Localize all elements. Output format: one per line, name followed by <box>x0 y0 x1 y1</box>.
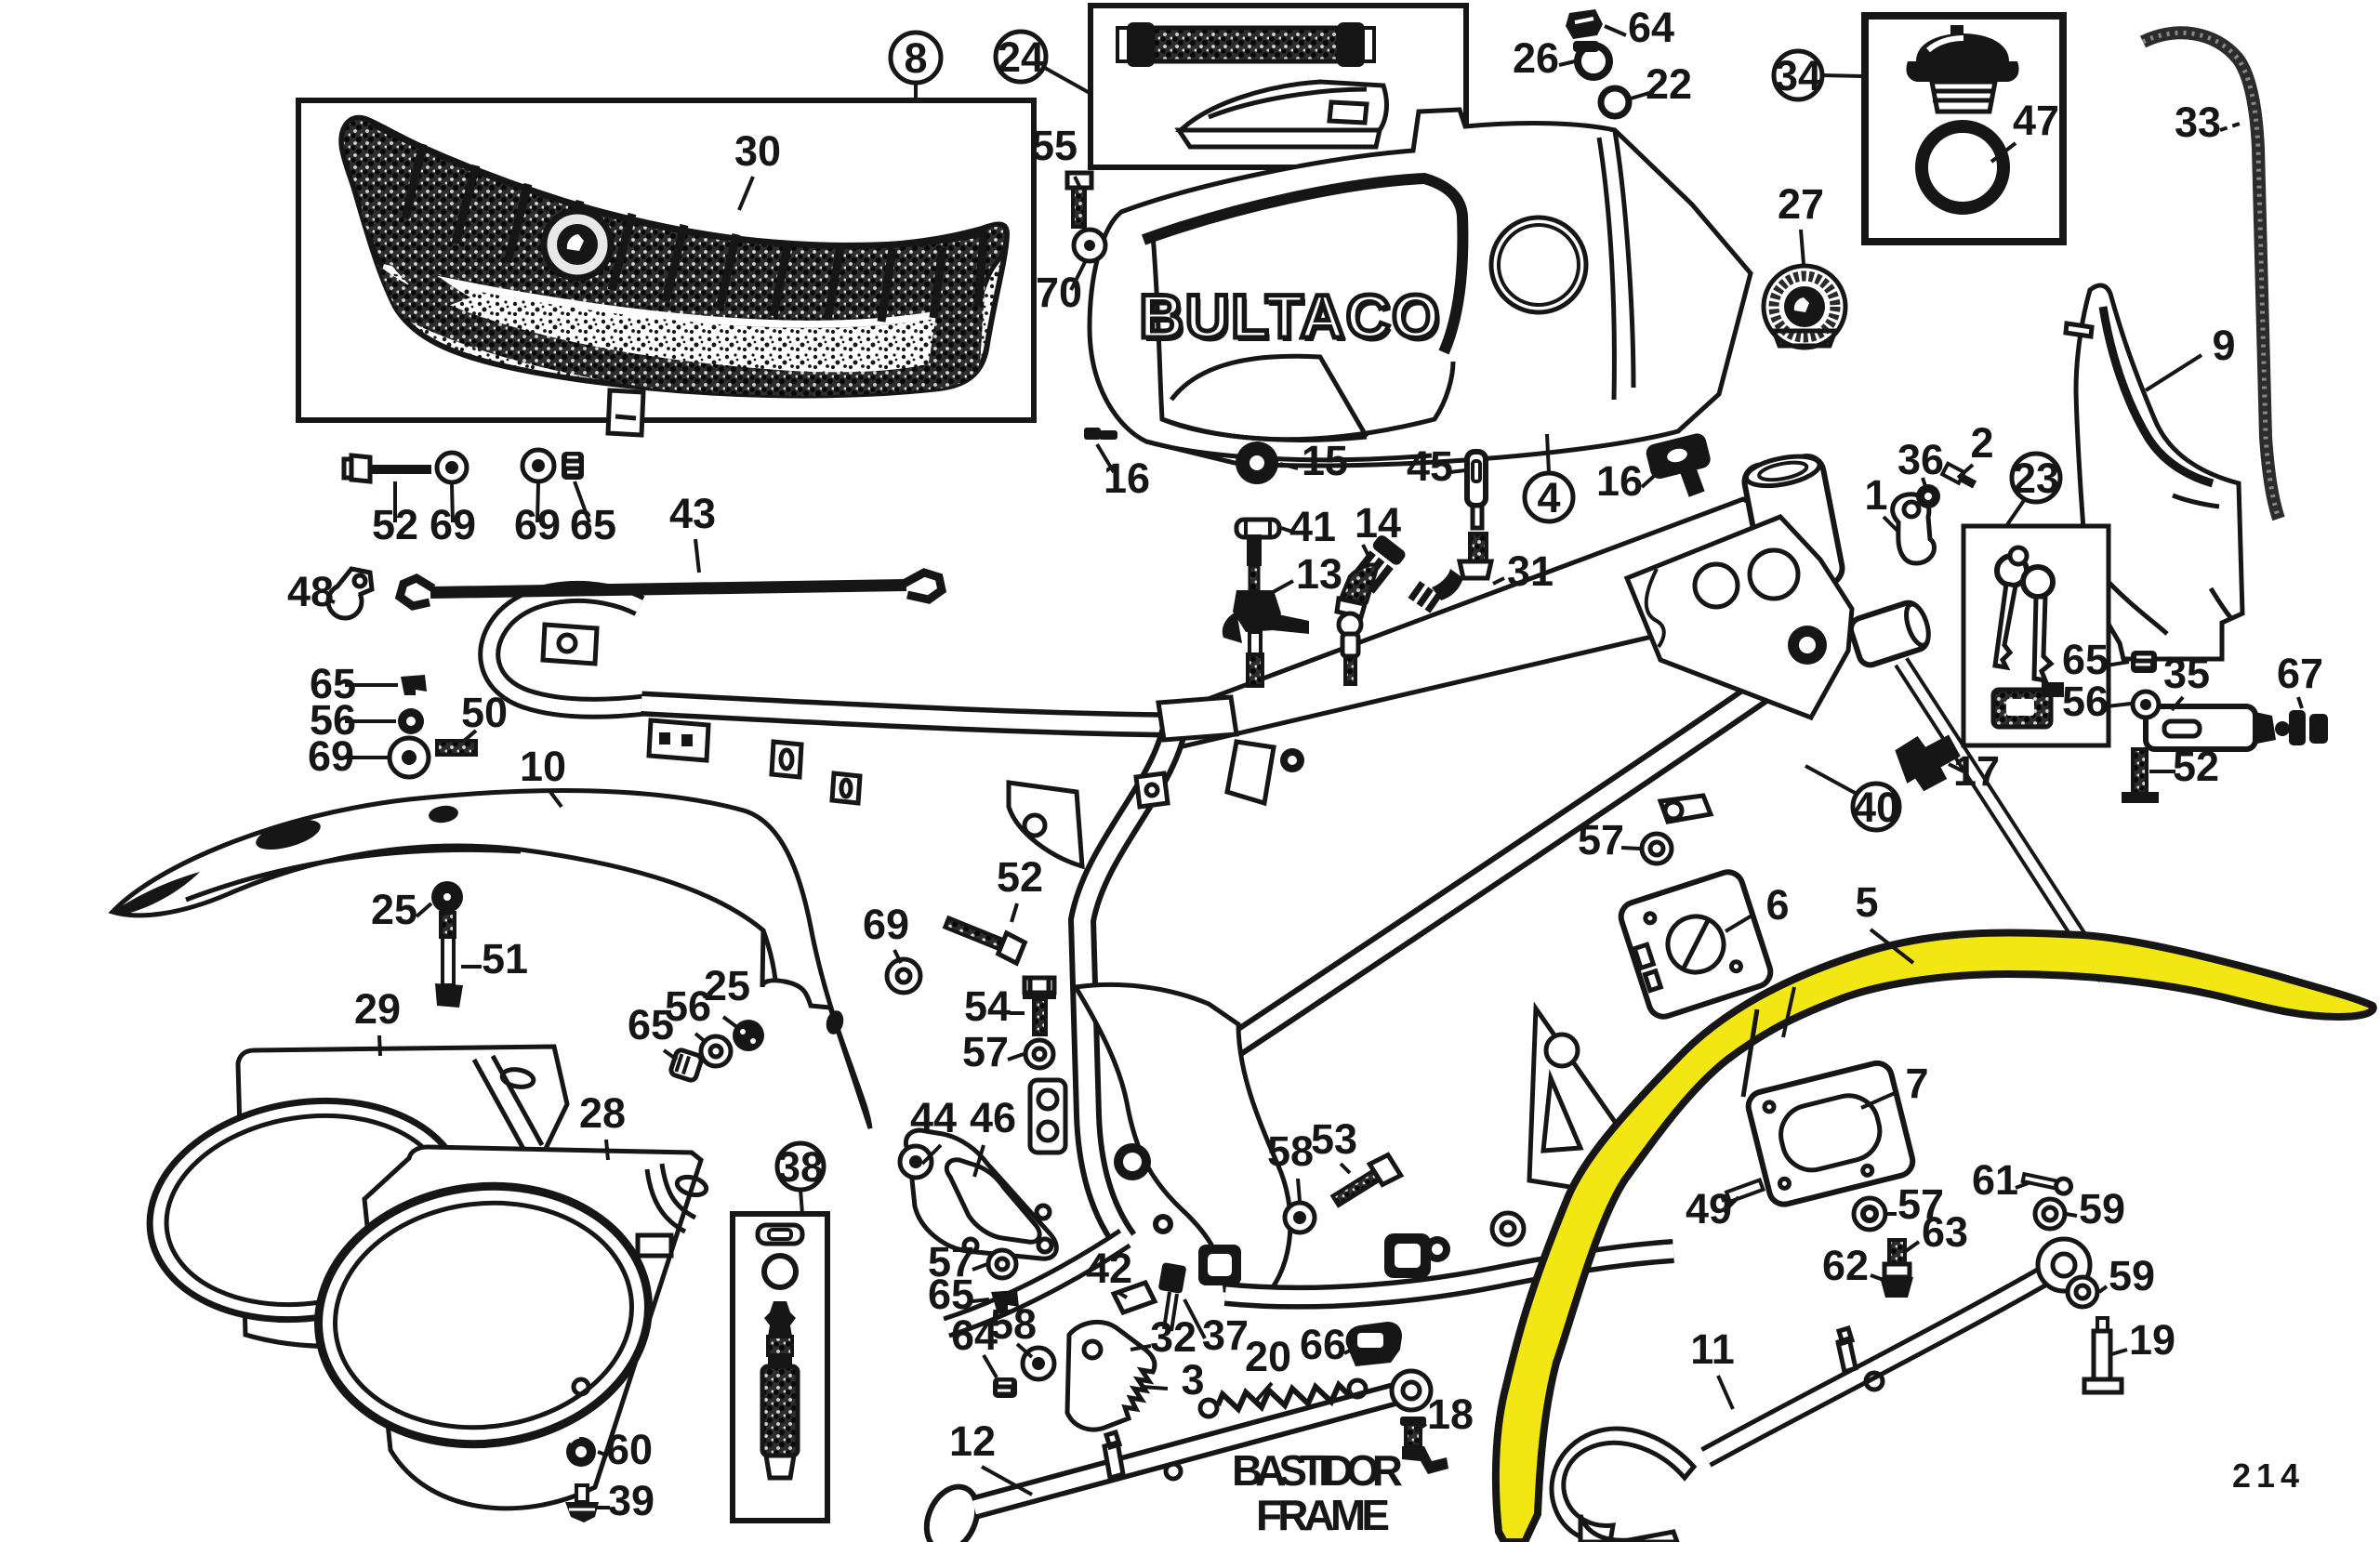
svg-text:13: 13 <box>1296 550 1342 598</box>
svg-text:65: 65 <box>2062 636 2109 683</box>
svg-text:56: 56 <box>2062 678 2109 725</box>
svg-text:FRAME: FRAME <box>1256 1491 1390 1539</box>
svg-text:31: 31 <box>1507 547 1554 595</box>
svg-text:40: 40 <box>1853 784 1899 831</box>
svg-text:28: 28 <box>579 1089 626 1137</box>
svg-text:BULTACO: BULTACO <box>1140 282 1442 350</box>
svg-text:64: 64 <box>1628 4 1674 51</box>
svg-text:54: 54 <box>964 982 1011 1030</box>
svg-text:39: 39 <box>608 1477 654 1524</box>
svg-text:53: 53 <box>1311 1115 1357 1163</box>
svg-text:15: 15 <box>1302 437 1348 484</box>
svg-text:22: 22 <box>1646 60 1692 108</box>
svg-text:11: 11 <box>1690 1325 1735 1373</box>
svg-text:52: 52 <box>372 501 418 548</box>
svg-text:8: 8 <box>904 34 927 82</box>
svg-text:64: 64 <box>951 1311 998 1359</box>
svg-text:41: 41 <box>1289 503 1336 550</box>
svg-text:38: 38 <box>777 1143 824 1191</box>
svg-text:51: 51 <box>482 935 528 982</box>
svg-text:3: 3 <box>1181 1356 1204 1404</box>
svg-text:26: 26 <box>1513 34 1559 82</box>
svg-text:7: 7 <box>1905 1060 1928 1107</box>
svg-text:69: 69 <box>308 732 354 780</box>
svg-text:35: 35 <box>2163 650 2210 697</box>
svg-text:25: 25 <box>704 962 750 1009</box>
svg-text:16: 16 <box>1596 457 1643 505</box>
svg-text:67: 67 <box>2277 650 2323 697</box>
svg-text:57: 57 <box>962 1028 1009 1075</box>
svg-text:63: 63 <box>1922 1208 1968 1256</box>
svg-text:5: 5 <box>1855 878 1878 926</box>
svg-text:19: 19 <box>2129 1316 2175 1364</box>
svg-text:52: 52 <box>2173 743 2219 790</box>
svg-text:17: 17 <box>1953 747 2000 795</box>
svg-text:12: 12 <box>949 1417 996 1465</box>
svg-text:65: 65 <box>570 501 616 548</box>
svg-text:34: 34 <box>1775 52 1821 99</box>
svg-text:59: 59 <box>2079 1185 2125 1232</box>
svg-text:48: 48 <box>287 568 334 615</box>
svg-text:69: 69 <box>863 901 909 948</box>
svg-text:20: 20 <box>1245 1333 1291 1380</box>
svg-text:55: 55 <box>1031 122 1078 169</box>
svg-text:37: 37 <box>1202 1311 1249 1359</box>
svg-text:2: 2 <box>1970 419 1993 467</box>
svg-text:27: 27 <box>1778 180 1824 228</box>
svg-text:9: 9 <box>2212 322 2235 369</box>
svg-text:18: 18 <box>1427 1390 1474 1438</box>
svg-text:57: 57 <box>1578 816 1624 863</box>
svg-text:29: 29 <box>354 985 401 1033</box>
svg-text:32: 32 <box>1150 1313 1197 1361</box>
svg-text:10: 10 <box>520 743 566 790</box>
svg-text:50: 50 <box>461 689 508 736</box>
svg-text:BASTIDOR: BASTIDOR <box>1232 1446 1403 1495</box>
svg-text:59: 59 <box>2109 1252 2155 1299</box>
svg-text:6: 6 <box>1765 881 1789 929</box>
svg-text:62: 62 <box>1822 1242 1869 1289</box>
svg-text:33: 33 <box>2175 99 2221 146</box>
svg-text:24: 24 <box>998 33 1044 81</box>
svg-text:52: 52 <box>997 853 1043 901</box>
svg-text:44: 44 <box>910 1094 957 1141</box>
svg-text:16: 16 <box>1104 455 1150 502</box>
svg-text:4: 4 <box>1537 474 1560 521</box>
svg-text:42: 42 <box>1086 1245 1132 1292</box>
svg-text:47: 47 <box>2013 97 2059 144</box>
svg-text:58: 58 <box>1267 1127 1314 1175</box>
svg-text:70: 70 <box>1036 269 1082 316</box>
svg-text:66: 66 <box>1300 1321 1346 1368</box>
svg-text:61: 61 <box>1972 1156 2018 1204</box>
svg-text:23: 23 <box>2013 455 2059 502</box>
svg-text:60: 60 <box>606 1426 653 1473</box>
svg-text:25: 25 <box>371 886 417 933</box>
svg-text:49: 49 <box>1686 1185 1732 1232</box>
svg-text:69: 69 <box>514 501 561 548</box>
svg-text:46: 46 <box>970 1094 1016 1141</box>
svg-text:43: 43 <box>669 490 716 537</box>
svg-text:214: 214 <box>2232 1456 2305 1495</box>
svg-text:14: 14 <box>1355 499 1401 547</box>
svg-text:1: 1 <box>1864 471 1887 519</box>
svg-text:69: 69 <box>430 501 476 548</box>
svg-text:45: 45 <box>1407 442 1453 490</box>
svg-text:36: 36 <box>1897 436 1944 483</box>
svg-text:30: 30 <box>734 127 781 175</box>
